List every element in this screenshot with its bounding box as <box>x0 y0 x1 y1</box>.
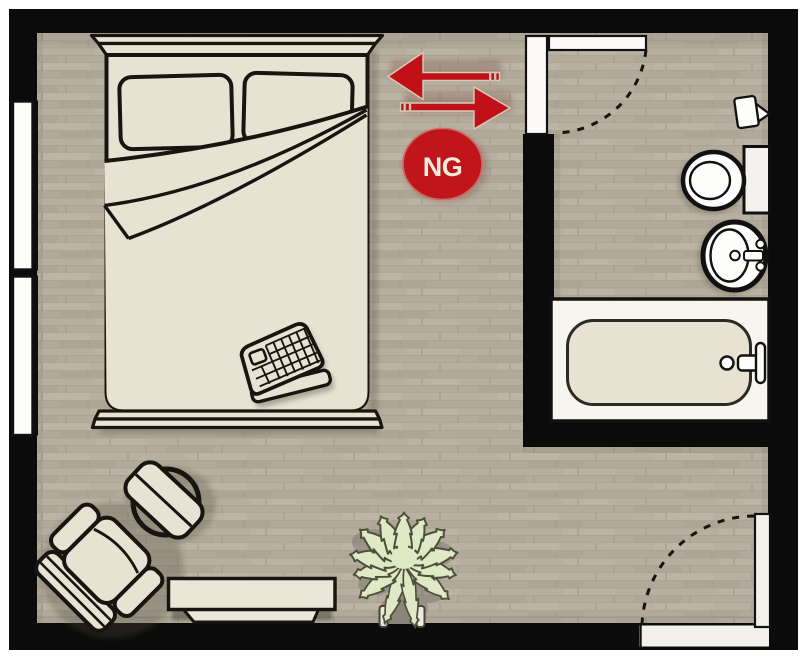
svg-text:NG: NG <box>423 152 463 182</box>
